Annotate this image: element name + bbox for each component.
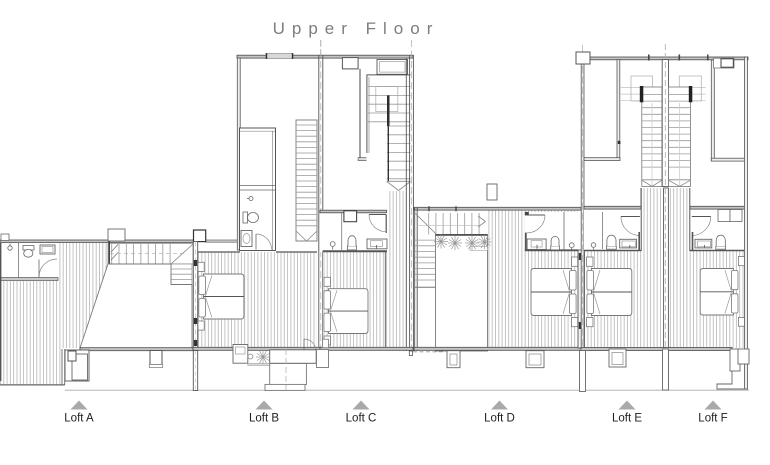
svg-text:Loft A: Loft A bbox=[64, 413, 94, 425]
svg-text:Loft D: Loft D bbox=[484, 413, 515, 425]
svg-text:Upper Floor: Upper Floor bbox=[273, 19, 440, 38]
svg-text:Loft C: Loft C bbox=[346, 413, 377, 425]
svg-text:Loft E: Loft E bbox=[612, 413, 642, 425]
svg-text:Loft F: Loft F bbox=[698, 413, 727, 425]
svg-text:Loft B: Loft B bbox=[249, 413, 279, 425]
